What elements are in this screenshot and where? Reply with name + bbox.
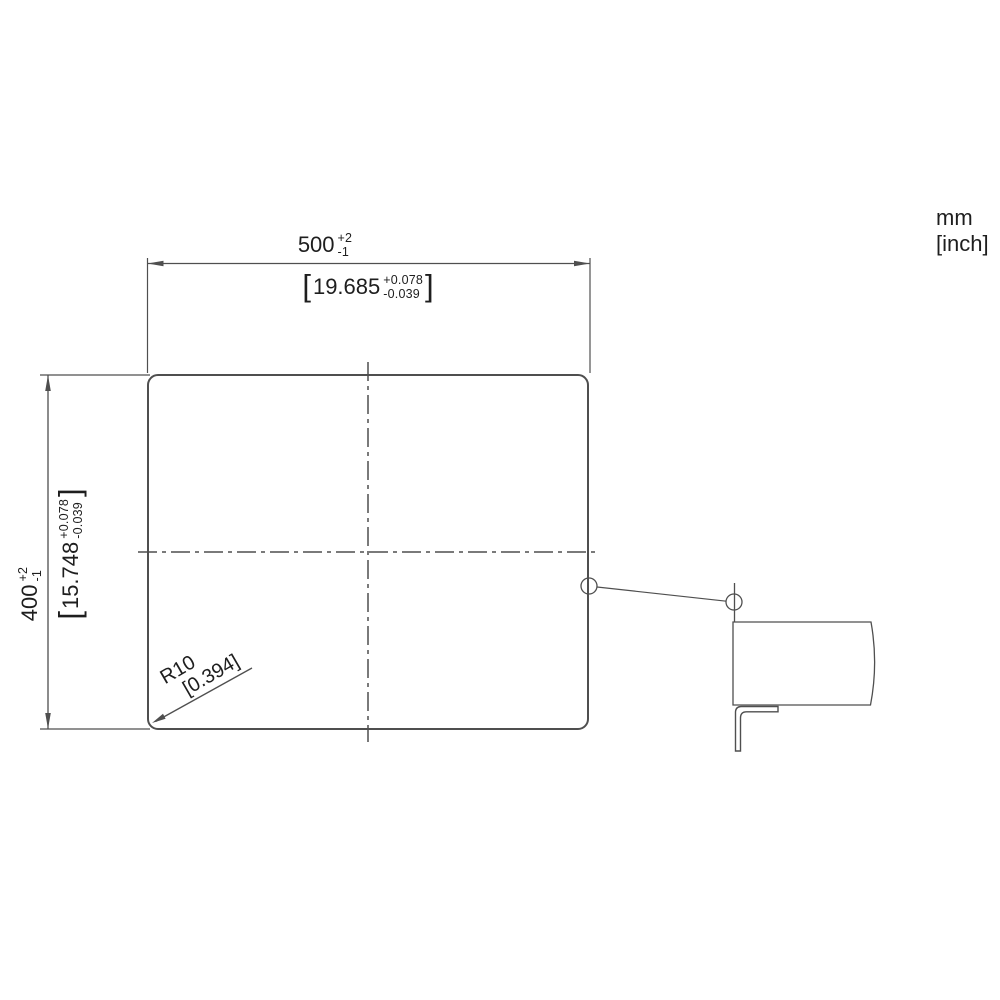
bracket-close: ] (425, 273, 434, 299)
units-inch: [inch] (936, 231, 989, 257)
width-inch-tolerance: +0.078 -0.039 (383, 273, 423, 301)
bracket-open: [ (57, 611, 83, 620)
radius-leader-arrow (152, 714, 166, 723)
height-arrow-top (45, 375, 51, 391)
height-inch-value: 15.748 (60, 542, 82, 609)
bracket-close: ] (57, 488, 83, 497)
width-arrow-right (574, 261, 590, 267)
units-label: mm [inch] (936, 205, 989, 258)
width-dimension-mm: 500 +2 -1 (298, 231, 352, 259)
height-mm-tolerance: +2 -1 (16, 567, 44, 582)
width-inch-value: 19.685 (313, 276, 380, 298)
width-mm-tolerance: +2 -1 (338, 231, 353, 259)
height-dimension-inch: [ 15.748 +0.078 -0.039 ] (57, 486, 85, 621)
height-mm-value: 400 (19, 584, 41, 621)
height-dimension-mm: 400 +2 -1 (16, 567, 44, 621)
reference-connector-line (597, 587, 726, 601)
height-inch-tolerance: +0.078 -0.039 (57, 499, 85, 539)
width-dimension-inch: [ 19.685 +0.078 -0.039 ] (300, 273, 435, 301)
countertop-section-hatch (733, 622, 875, 705)
drawing-linework (0, 0, 1000, 1000)
bracket-open: [ (302, 273, 311, 299)
technical-drawing-canvas: 500 +2 -1 [ 19.685 +0.078 -0.039 ] 400 +… (0, 0, 1000, 1000)
height-arrow-bottom (45, 713, 51, 729)
width-arrow-left (148, 261, 164, 267)
sink-flange-profile (736, 707, 779, 752)
units-mm: mm (936, 205, 989, 231)
width-mm-value: 500 (298, 234, 335, 256)
